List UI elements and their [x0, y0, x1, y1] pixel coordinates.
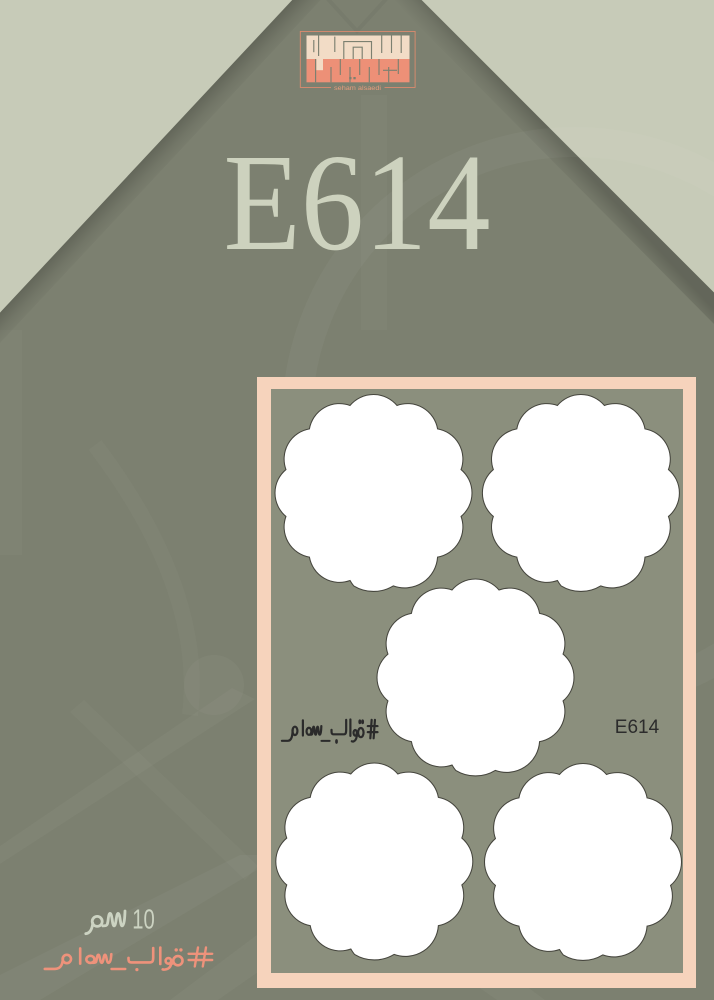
svg-text:10: 10 — [132, 904, 155, 935]
svg-text:seham alsaedi: seham alsaedi — [334, 85, 381, 92]
